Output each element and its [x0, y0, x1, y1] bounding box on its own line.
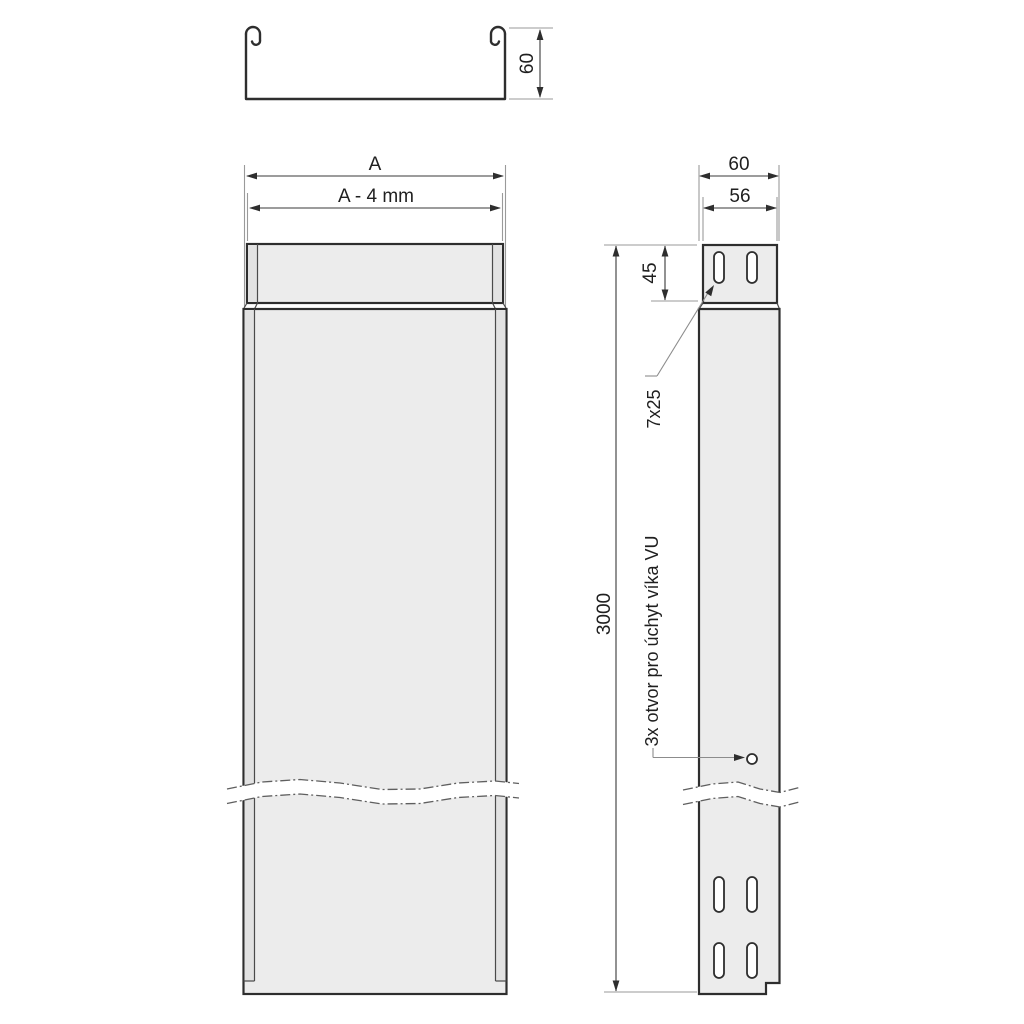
profile-right-hook: [491, 27, 505, 45]
arrowhead: [613, 246, 620, 257]
front-view: A A - 4 mm: [227, 154, 519, 994]
front-body-right-strip: [496, 310, 506, 981]
cross-section-view: 60: [246, 27, 553, 99]
front-collar-left-strip: [248, 245, 257, 302]
arrowhead: [493, 173, 504, 180]
arrowhead: [766, 205, 777, 212]
arrowhead: [537, 29, 544, 40]
front-collar-right-strip: [493, 245, 502, 302]
slot-hole: [714, 877, 724, 912]
slot-hole: [714, 252, 724, 283]
profile-left-hook: [246, 27, 260, 45]
dim-label-collar-height: 45: [640, 262, 661, 283]
side-body: [699, 309, 780, 994]
technical-drawing-page: 60 A A - 4 mm: [0, 0, 1024, 1024]
dim-label-inner-width: A - 4 mm: [338, 186, 414, 207]
slot-hole: [747, 252, 757, 283]
side-view: 60 56 45: [594, 154, 801, 994]
arrowhead: [662, 246, 669, 257]
front-collar: [247, 244, 503, 303]
arrowhead: [249, 205, 260, 212]
slot-size-label: 7x25: [644, 389, 664, 428]
arrowhead: [662, 290, 669, 301]
front-body-left-strip: [245, 310, 255, 981]
arrowhead: [699, 173, 710, 180]
arrowhead: [537, 87, 544, 98]
round-hole: [747, 754, 757, 764]
dim-label-overall-width: A: [369, 154, 382, 175]
arrowhead: [490, 205, 501, 212]
slot-hole: [747, 943, 757, 978]
arrowhead: [246, 173, 257, 180]
dim-label-length: 3000: [594, 593, 615, 635]
slot-hole: [747, 877, 757, 912]
front-body: [244, 309, 507, 994]
hole-note-label: 3x otvor pro úchyt víka VU: [642, 535, 662, 746]
arrowhead: [768, 173, 779, 180]
arrowhead: [613, 981, 620, 992]
profile-outline: [246, 34, 505, 99]
dim-label-inner-depth: 56: [729, 186, 750, 207]
arrowhead: [703, 205, 714, 212]
technical-drawing-canvas: 60 A A - 4 mm: [0, 0, 1024, 1024]
slot-hole: [714, 943, 724, 978]
dim-label-overall-depth: 60: [728, 154, 749, 175]
dim-label-profile-height: 60: [517, 53, 538, 74]
